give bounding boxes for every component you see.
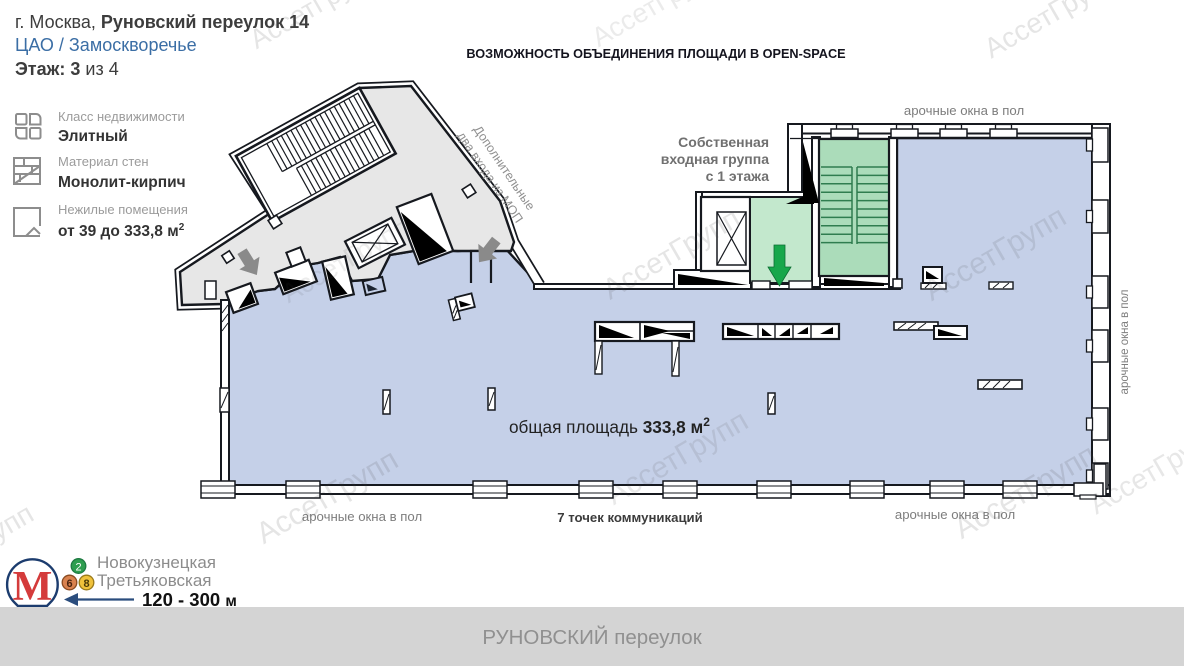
svg-text:Новокузнецкая: Новокузнецкая xyxy=(97,553,216,572)
svg-text:8: 8 xyxy=(83,578,89,590)
svg-text:входная группа: входная группа xyxy=(661,151,769,167)
svg-text:2: 2 xyxy=(75,562,81,574)
svg-text:ЦАО / Замоскворечье: ЦАО / Замоскворечье xyxy=(15,35,197,55)
svg-text:120 - 300 м: 120 - 300 м xyxy=(142,589,237,610)
svg-text:общая площадь 333,8 м2: общая площадь 333,8 м2 xyxy=(509,415,710,437)
svg-text:7 точек коммуникаций: 7 точек коммуникаций xyxy=(557,510,703,525)
svg-text:РУНОВСКИЙ переулок: РУНОВСКИЙ переулок xyxy=(482,625,702,649)
svg-text:Материал стен: Материал стен xyxy=(58,154,149,169)
svg-text:Нежилые помещения: Нежилые помещения xyxy=(58,202,188,217)
svg-text:Монолит-кирпич: Монолит-кирпич xyxy=(58,174,186,191)
svg-text:Класс недвижимости: Класс недвижимости xyxy=(58,109,185,124)
svg-text:арочные окна в пол: арочные окна в пол xyxy=(1119,290,1131,395)
svg-text:Элитный: Элитный xyxy=(58,128,128,145)
svg-text:от 39 до 333,8 м2: от 39 до 333,8 м2 xyxy=(58,222,185,240)
svg-text:Этаж: 3 из 4: Этаж: 3 из 4 xyxy=(15,59,119,79)
svg-text:М: М xyxy=(13,564,53,610)
svg-text:арочные окна в пол: арочные окна в пол xyxy=(904,103,1024,118)
svg-text:ВОЗМОЖНОСТЬ ОБЪЕДИНЕНИЯ ПЛОЩАД: ВОЗМОЖНОСТЬ ОБЪЕДИНЕНИЯ ПЛОЩАДИ В OPEN-S… xyxy=(466,47,845,61)
svg-text:Собственная: Собственная xyxy=(678,134,769,150)
svg-text:6: 6 xyxy=(66,578,72,590)
svg-text:с 1 этажа: с 1 этажа xyxy=(706,168,770,184)
svg-text:Третьяковская: Третьяковская xyxy=(97,571,212,590)
